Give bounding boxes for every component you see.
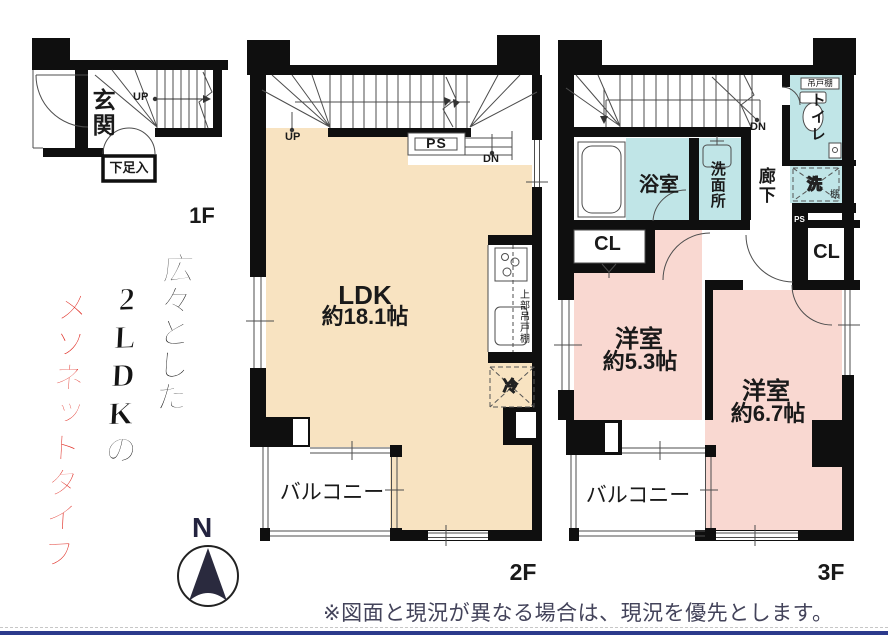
up-label-1f: UP	[133, 92, 148, 104]
divider-blue-line	[0, 631, 888, 635]
washroom-label: 洗面所	[709, 161, 725, 209]
balcony-label-2f: バルコニー	[272, 482, 392, 504]
pipe-space-label-2f: PS	[408, 136, 465, 151]
pipe-space-label-3f: PS	[793, 215, 806, 224]
toilet-label: トイレ	[809, 92, 825, 143]
fridge-label: 冷	[503, 379, 518, 395]
corridor-label: 廊下	[756, 167, 774, 205]
stairs-3f	[566, 75, 760, 127]
entrance-label: 玄関	[90, 88, 114, 138]
down-label-3f: DN	[750, 122, 766, 134]
slogan-line-1: 広々とした	[146, 251, 200, 413]
up-label-2f: UP	[285, 132, 300, 144]
ldk-size-label: 約18.1帖	[305, 305, 425, 328]
compass-north-label: N	[192, 512, 212, 544]
compass	[178, 546, 238, 606]
hanging-cabinet-label: 吊戸棚	[802, 79, 838, 88]
floor1-label: 1F	[186, 204, 218, 227]
washer-label: 洗	[807, 177, 822, 193]
floor2-label: 2F	[505, 560, 541, 584]
shoe-box-label: 下足入	[103, 161, 155, 175]
divider-dashed-line	[0, 627, 888, 628]
compass-needle	[189, 548, 227, 601]
floorplan-page: 広々とした 2LDKの メゾネットタイプ 玄関 UP 下足入 1F UP PS …	[0, 0, 888, 639]
disclaimer-note: ※図面と現況が異なる場合は、現況を優先とします。	[323, 597, 834, 627]
balcony-label-3f: バルコニー	[578, 485, 698, 507]
closet-left-label: CL	[580, 234, 635, 255]
bedroom1-size-label: 約5.3帖	[580, 350, 700, 373]
bedroom2-size-label: 約6.7帖	[708, 402, 828, 425]
upper-cabinet-label: 上部吊戸棚	[517, 289, 528, 344]
closet-right-label: CL	[799, 242, 854, 263]
floor3-label: 3F	[813, 560, 849, 584]
bathtub	[578, 142, 625, 217]
bathroom-label: 浴室	[629, 175, 689, 196]
shelf-label: 棚	[830, 190, 839, 199]
down-label-2f: DN	[483, 154, 499, 166]
